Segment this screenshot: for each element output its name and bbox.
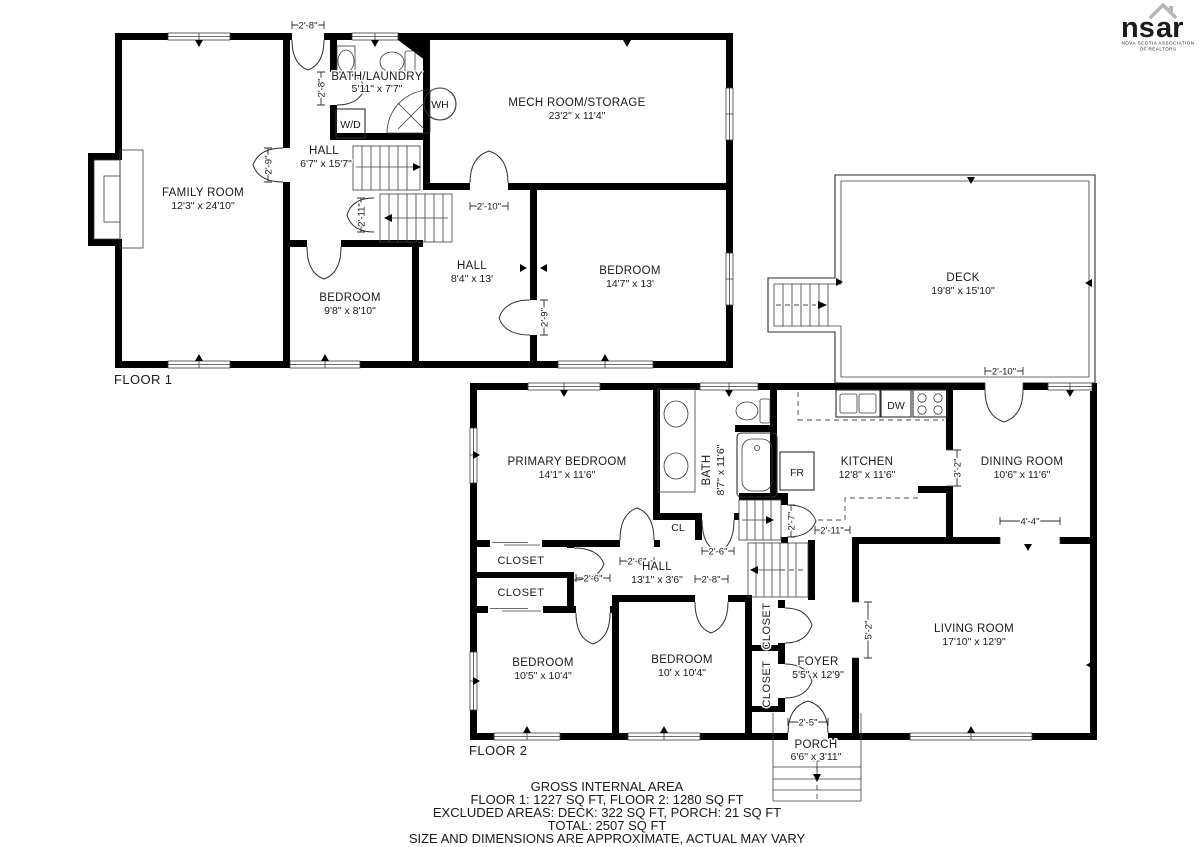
room-label-family: FAMILY ROOM (162, 187, 244, 199)
water-heater-label: WH (431, 99, 449, 111)
room-label-bedroom-large: BEDROOM (599, 265, 661, 277)
mech-door-arc (470, 151, 508, 183)
dim-kitchen-pass: 2'-11" (820, 526, 844, 537)
closet3-label: CLOSET (761, 602, 773, 649)
dim-stair2-door: 2'-7" (787, 512, 798, 531)
room-label-bath-laundry: BATH/LAUNDRY (331, 71, 422, 83)
dishwasher-label: DW (887, 400, 905, 412)
room-dims-dining: 10'6" x 11'6" (994, 469, 1051, 481)
closet-slider-icon (490, 540, 542, 547)
primary-door-arc (620, 508, 654, 540)
floor2-plan: DW FR 2'-10" 2'-6" 2'-6" 2'-6" 2' (469, 367, 1097, 802)
bedroom2-door-arc (499, 300, 530, 335)
bedroom3-door-arc (576, 613, 610, 644)
room-dims-primary: 14'1" x 11'6" (539, 469, 596, 481)
room-dims-mech: 23'2" x 11'4" (549, 110, 606, 122)
dim-bedroom-door: 2'-9" (540, 308, 551, 327)
room-dims-bedroom-large: 14'7" x 13' (606, 278, 654, 290)
room-label-bedroom4: BEDROOM (651, 654, 713, 666)
room-dims-deck: 19'8" x 15'10" (931, 285, 995, 297)
floorplan-canvas: DECK 19'8" x 15'10" (0, 0, 1200, 847)
floor2-label: FLOOR 2 (469, 743, 527, 758)
dim-deck-door: 2'-10" (992, 367, 1016, 378)
room-label-bedroom3: BEDROOM (512, 657, 574, 669)
room-label-mech: MECH ROOM/STORAGE (508, 97, 645, 109)
room-dims-bath-laundry: 5'11" x 7'7" (352, 83, 403, 95)
dim-bath-door: 2'-8" (317, 79, 328, 98)
dim-bedroom3-door: 2'-6" (584, 574, 603, 585)
room-label-hall-lower: HALL (457, 260, 487, 272)
bath2-toilet-icon (736, 399, 770, 423)
deck-stairs (776, 284, 828, 326)
closet-cl-label: CL (671, 522, 685, 534)
dim-living-open: 5'-2" (864, 621, 875, 640)
room-label-porch: PORCH (794, 739, 837, 751)
room-dims-kitchen: 12'8" x 11'6" (839, 469, 896, 481)
deck-plan: DECK 19'8" x 15'10" (768, 175, 1095, 383)
room-dims-porch: 6'6" x 3'11" (791, 751, 842, 763)
room-label-bath2: BATH (701, 454, 713, 485)
room-dims-bath2: 8'7" x 11'6" (715, 444, 727, 495)
dim-dining-open: 4'-4" (1021, 517, 1040, 528)
dim-bath2-door: 2'-6" (709, 547, 728, 558)
bedroom1-door-arc (307, 247, 341, 279)
room-label-dining: DINING ROOM (981, 456, 1064, 468)
foyer-closet-a-door-arc (785, 608, 812, 643)
room-label-kitchen: KITCHEN (841, 456, 894, 468)
bath2-vanity-icon (658, 389, 695, 492)
deck-wall-ticks (836, 177, 1092, 287)
room-dims-hall-upper: 6'7" x 15'7" (300, 158, 352, 170)
dim-family-door: 2'-9" (264, 156, 275, 175)
room-label-living: LIVING ROOM (934, 623, 1014, 635)
dim-front-door: 2'-5" (799, 718, 818, 729)
floor1-windows (168, 32, 734, 369)
room-label-hall2: HALL (642, 561, 672, 573)
room-label-deck: DECK (946, 272, 979, 284)
room-dims-family: 12'3" x 24'10" (171, 200, 235, 212)
floor1-plan: WH W/D 2'-8" 2'-8" 2'-9" 2'-11" 2'-10" 2… (88, 21, 734, 388)
floorplan-page: DECK 19'8" x 15'10" (0, 0, 1200, 847)
fireplace (94, 150, 143, 248)
room-dims-hall2: 13'1" x 3'6" (631, 574, 683, 586)
dim-stair-door: 2'-11" (357, 203, 368, 227)
kitchen-sink-icon (836, 390, 880, 417)
closet2-label: CLOSET (497, 587, 544, 599)
deck-door-arc (985, 390, 1023, 422)
room-label-primary: PRIMARY BEDROOM (507, 456, 626, 468)
room-dims-living: 17'10" x 12'9" (942, 636, 1006, 648)
stove-icon (913, 390, 947, 417)
dim-bedroom4-door: 2'-8" (702, 575, 721, 586)
floor1-label: FLOOR 1 (114, 372, 172, 387)
dim-mech-door: 2'-10" (477, 202, 501, 213)
washer-dryer-label: W/D (340, 119, 361, 131)
logo-text-right: ar (1156, 12, 1183, 44)
floor2-windows (469, 382, 1092, 741)
bedroom4-door-arc (695, 602, 728, 633)
logo-subtitle-2: OF REALTORS (1140, 47, 1177, 52)
closet1-label: CLOSET (497, 555, 544, 567)
closet4-label: CLOSET (761, 660, 773, 707)
footer-disclaimer: SIZE AND DIMENSIONS ARE APPROXIMATE, ACT… (409, 831, 806, 846)
room-dims-bedroom-small: 9'8" x 8'10" (324, 305, 376, 317)
room-label-hall-upper: HALL (309, 145, 339, 157)
room-dims-bedroom4: 10' x 10'4" (658, 667, 706, 679)
room-label-foyer: FOYER (797, 656, 838, 668)
room-dims-hall-lower: 8'4" x 13' (451, 273, 493, 285)
fridge-label: FR (790, 467, 804, 479)
room-label-bedroom-small: BEDROOM (319, 292, 381, 304)
dim-kitchen-open: 3'-2" (953, 459, 964, 478)
entry-door-arc (292, 40, 324, 70)
footer-summary: GROSS INTERNAL AREA FLOOR 1: 1227 SQ FT,… (409, 779, 806, 846)
logo-subtitle-1: NOVA SCOTIA ASSOCIATION (1122, 41, 1195, 46)
room-dims-bedroom3: 10'5" x 10'4" (514, 670, 572, 682)
room-dims-foyer: 5'5" x 12'9" (792, 669, 844, 681)
floor2-walls (470, 383, 1097, 740)
dim-entry: 2'-8" (299, 21, 318, 32)
nsar-logo: ns ar NOVA SCOTIA ASSOCIATION OF REALTOR… (1121, 5, 1194, 52)
closet-slider-icon (488, 606, 543, 613)
